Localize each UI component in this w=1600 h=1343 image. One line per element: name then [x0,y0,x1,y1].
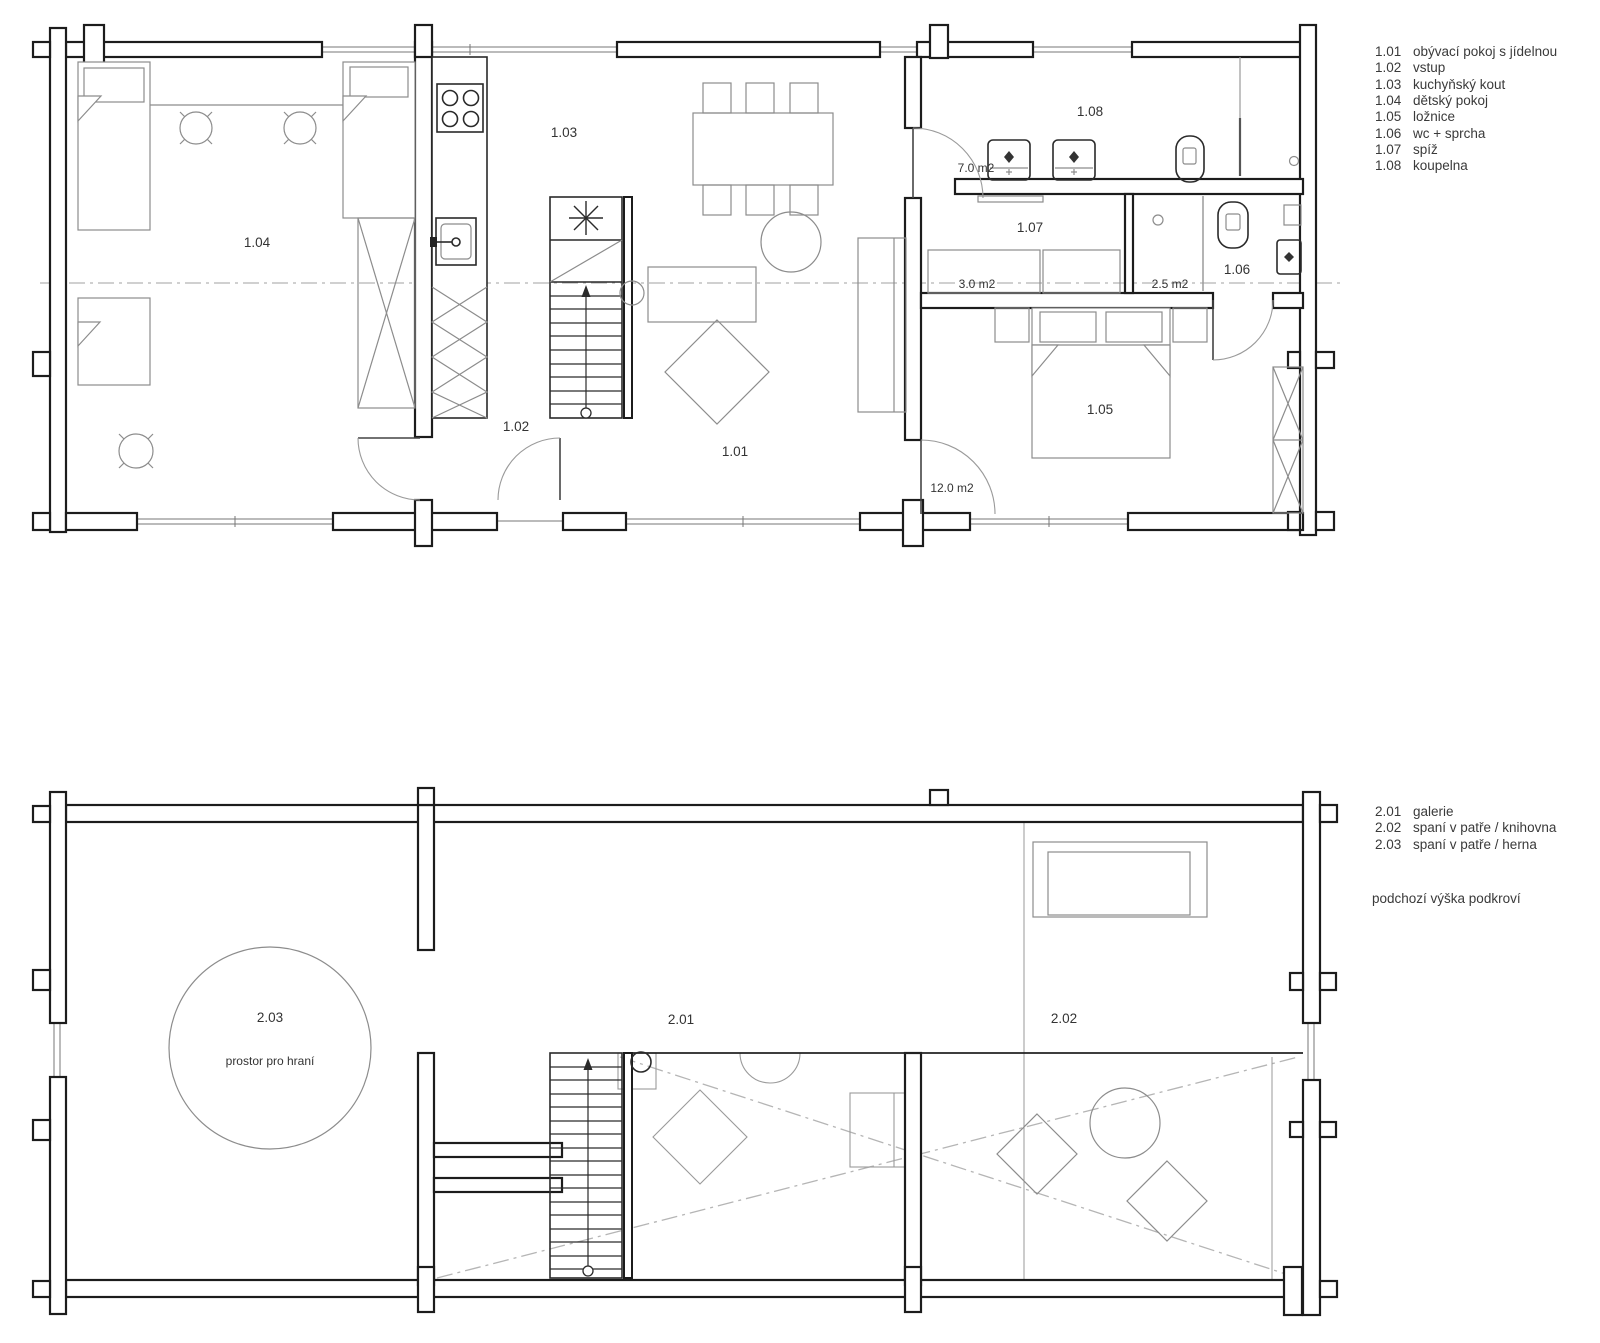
area-label-spiz: 3.0 m2 [959,277,996,291]
room-label-2-02: 2.02 [1051,1011,1077,1026]
area-label-koupelna: 7.0 m2 [958,161,995,175]
legend-label: dětský pokoj [1413,93,1488,108]
toilet-icon [1218,202,1248,248]
legend-label: spaní v patře / knihovna [1413,820,1557,835]
attic-furniture [169,842,1207,1241]
floorplan-ground: 1.04 1.03 1.02 1.01 1.08 1.07 1.06 1.05 … [33,25,1340,546]
couch [78,298,150,385]
washbasin-icon [1053,140,1095,180]
dining-table [693,113,833,185]
legend-label: wc + sprcha [1412,126,1486,141]
legend-code: 2.01 [1375,804,1401,819]
legend-label: ložnice [1413,109,1455,124]
void-seethrough-furniture [618,1053,906,1184]
legend-code: 2.02 [1375,820,1401,835]
legend-code: 2.03 [1375,837,1401,852]
room-label-1-08: 1.08 [1077,104,1103,119]
legend-label: galerie [1413,804,1454,819]
play-area-circle [169,947,371,1149]
room-label-1-05: 1.05 [1087,402,1113,417]
area-label-loznice: 12.0 m2 [930,481,974,495]
legend-code: 1.05 [1375,109,1401,124]
pouf [1090,1088,1160,1158]
shower-drain [1290,157,1299,166]
star-icon [569,201,603,235]
legend-attic: 2.01 galerie 2.02 spaní v patře / knihov… [1372,804,1557,906]
architectural-sheet: 1.04 1.03 1.02 1.01 1.08 1.07 1.06 1.05 … [0,0,1600,1343]
wardrobe [1273,367,1303,513]
shelf-box [1284,205,1301,225]
nightstand [1173,308,1207,342]
legend-note: podchozí výška podkroví [1372,891,1521,906]
pouf [997,1114,1077,1194]
sofa [858,238,906,412]
pouf [1127,1161,1207,1241]
gallery-railing [434,1178,562,1192]
room-label-1-03: 1.03 [551,125,577,140]
legend-label: koupelna [1413,158,1468,173]
room-label-1-07: 1.07 [1017,220,1043,235]
gallery-railing [434,1143,562,1157]
legend-code: 1.06 [1375,126,1401,141]
rug [665,320,769,424]
living-room-furniture [665,212,906,424]
legend-label: vstup [1413,60,1445,75]
log-posts-attic [33,788,1337,1315]
floorplan-drawing: 1.04 1.03 1.02 1.01 1.08 1.07 1.06 1.05 … [0,0,1600,1343]
pantry-shelf [1043,250,1120,293]
legend-label: spaní v patře / herna [1413,837,1537,852]
wardrobe [358,218,415,408]
chair [284,112,316,144]
shower-drain [1153,215,1163,225]
legend-code: 1.03 [1375,77,1401,92]
bedroom-furniture [995,308,1303,513]
room-label-1-02: 1.02 [503,419,529,434]
room-label-1-04: 1.04 [244,235,271,250]
dining-set [693,83,833,215]
legend-label: kuchyňský kout [1413,77,1506,92]
pantry-shelf [978,196,1043,202]
log-posts-ground [33,25,1334,546]
legend-label: spíž [1413,142,1438,157]
room-label-2-01: 2.01 [668,1012,694,1027]
play-area-label: prostor pro hraní [226,1054,315,1068]
legend-label: obývací pokoj s jídelnou [1413,44,1557,59]
pouf [761,212,821,272]
legend-code: 1.04 [1375,93,1402,108]
windows-attic [51,1023,1317,1080]
legend-code: 1.02 [1375,60,1401,75]
legend-ground: 1.01 obývací pokoj s jídelnou 1.02 vstup… [1375,44,1557,173]
legend-code: 1.01 [1375,44,1401,59]
chair [180,112,212,144]
kitchen-counter [432,57,487,418]
nightstand [995,308,1029,342]
staircase-attic [550,1052,651,1278]
loft-bed [1033,842,1207,917]
toilet-icon [1176,136,1204,182]
staircase-ground [550,197,756,418]
legend-code: 1.08 [1375,158,1401,173]
legend-code: 1.07 [1375,142,1401,157]
side-table [648,267,756,322]
room-label-1-06: 1.06 [1224,262,1250,277]
childrens-room-furniture [78,62,415,468]
kitchen-fixtures [430,57,487,418]
floorplan-attic: 2.03 prostor pro hraní 2.01 2.02 [33,788,1337,1315]
area-label-sprcha: 2.5 m2 [1152,277,1189,291]
armchair [119,434,153,468]
room-label-1-01: 1.01 [722,444,748,459]
room-label-2-03: 2.03 [257,1010,283,1025]
